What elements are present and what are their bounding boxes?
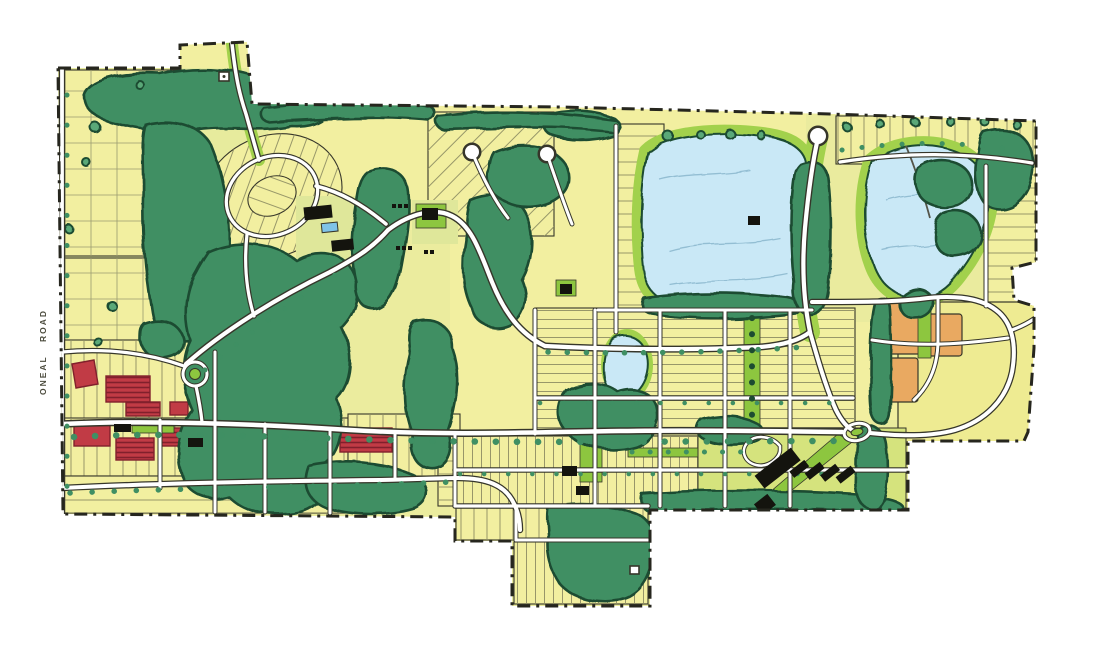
master-plan-map: ONEAL ROAD [0,0,1100,650]
village-building [562,466,577,476]
utility-site [630,566,639,574]
oneal-road-label: ONEAL ROAD [38,309,48,395]
swimming-pool [321,222,338,233]
commercial-building [114,424,131,432]
boat-dock [748,216,760,225]
village-building [576,486,589,495]
master-plan-canvas: ONEAL ROAD [0,0,1100,650]
lake-west [641,134,808,309]
commercial-building [188,438,203,447]
park-pavilion [560,284,572,294]
